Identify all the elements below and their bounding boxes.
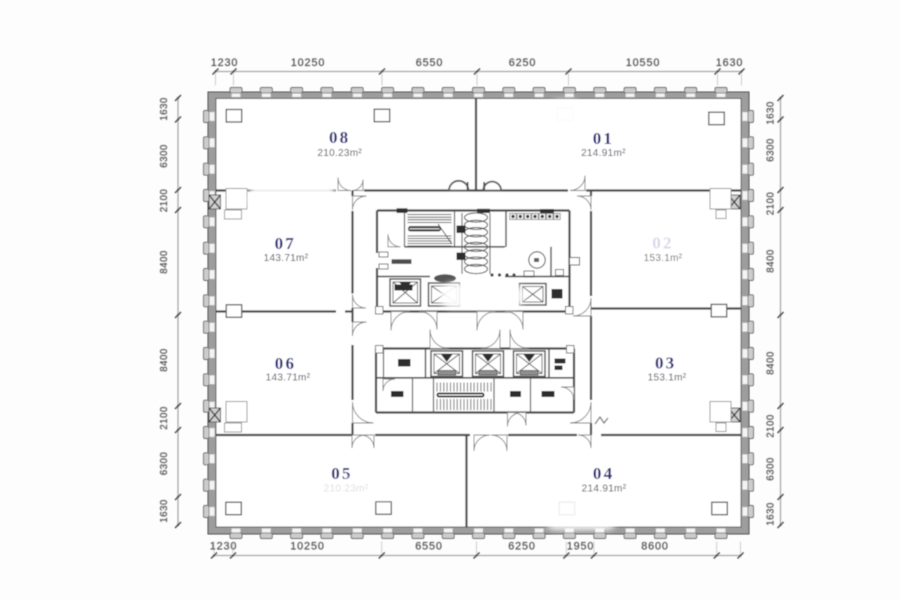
svg-text:03: 03 xyxy=(655,354,676,373)
svg-text:07: 07 xyxy=(275,234,296,253)
svg-text:143.71m²: 143.71m² xyxy=(264,253,309,264)
svg-text:1230: 1230 xyxy=(210,541,238,553)
svg-text:6300: 6300 xyxy=(766,138,777,162)
svg-text:153.1m²: 153.1m² xyxy=(644,253,683,264)
svg-text:2100: 2100 xyxy=(766,414,777,438)
svg-text:210.23m²: 210.23m² xyxy=(317,148,362,159)
svg-text:04: 04 xyxy=(593,464,614,483)
svg-text:6300: 6300 xyxy=(766,457,777,481)
svg-text:8400: 8400 xyxy=(159,250,170,274)
svg-text:01: 01 xyxy=(593,129,614,148)
svg-text:6300: 6300 xyxy=(159,144,170,168)
svg-text:1230: 1230 xyxy=(211,57,239,69)
svg-text:8400: 8400 xyxy=(159,348,170,372)
svg-text:210.23m²: 210.23m² xyxy=(324,484,369,495)
svg-text:10250: 10250 xyxy=(291,57,326,69)
svg-text:6300: 6300 xyxy=(159,452,170,476)
svg-text:153.1m²: 153.1m² xyxy=(648,373,687,384)
svg-text:8600: 8600 xyxy=(641,541,669,553)
svg-text:06: 06 xyxy=(275,354,296,373)
svg-text:6550: 6550 xyxy=(415,541,443,553)
svg-text:6250: 6250 xyxy=(509,57,537,69)
svg-text:1630: 1630 xyxy=(766,502,777,526)
svg-text:2100: 2100 xyxy=(159,189,170,213)
svg-text:1630: 1630 xyxy=(159,97,170,121)
svg-text:6250: 6250 xyxy=(508,541,536,553)
svg-text:1630: 1630 xyxy=(159,499,170,523)
svg-text:02: 02 xyxy=(652,234,673,253)
svg-text:214.91m²: 214.91m² xyxy=(582,484,627,495)
svg-text:214.91m²: 214.91m² xyxy=(581,148,626,159)
svg-text:1630: 1630 xyxy=(716,57,744,69)
svg-text:6550: 6550 xyxy=(416,57,444,69)
svg-text:10550: 10550 xyxy=(626,57,661,69)
svg-text:1630: 1630 xyxy=(766,101,777,125)
svg-text:8400: 8400 xyxy=(766,351,777,375)
svg-text:2100: 2100 xyxy=(766,192,777,216)
svg-text:143.71m²: 143.71m² xyxy=(266,373,311,384)
svg-text:8400: 8400 xyxy=(766,249,777,273)
svg-text:2100: 2100 xyxy=(159,406,170,430)
svg-text:1950: 1950 xyxy=(567,541,595,553)
svg-text:08: 08 xyxy=(329,128,350,147)
svg-text:10250: 10250 xyxy=(290,541,325,553)
